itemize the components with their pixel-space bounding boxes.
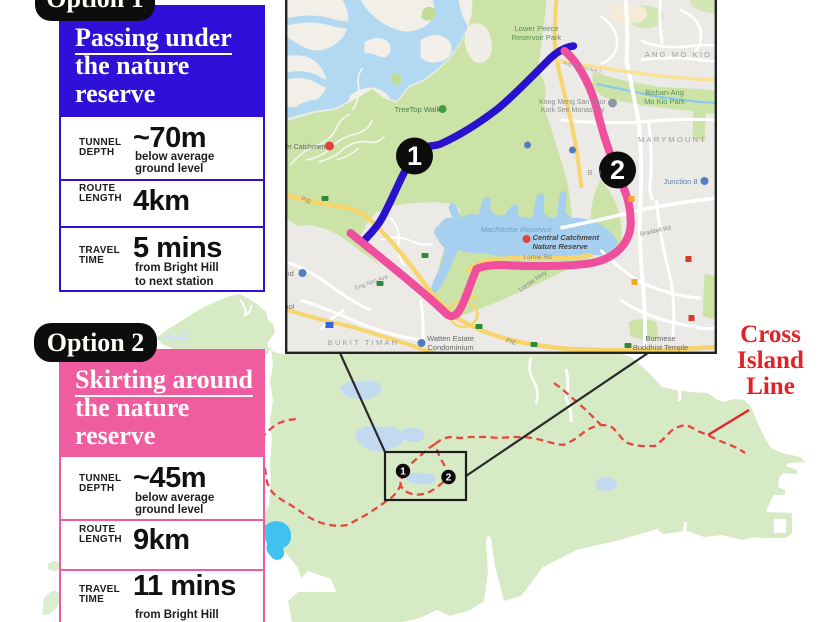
svg-text:Condominium: Condominium <box>427 343 473 352</box>
svg-text:Central Catchment: Central Catchment <box>532 233 599 242</box>
svg-text:Watten Estate: Watten Estate <box>427 334 474 343</box>
svg-text:MARYMOUNT: MARYMOUNT <box>638 135 707 144</box>
svg-text:Burmese: Burmese <box>645 334 675 343</box>
svg-text:2: 2 <box>609 155 624 185</box>
svg-text:BUKIT TIMAH: BUKIT TIMAH <box>327 338 398 347</box>
svg-text:1: 1 <box>400 467 406 478</box>
svg-text:TreeTop Walk: TreeTop Walk <box>394 105 440 114</box>
svg-text:Lornie Rd: Lornie Rd <box>523 254 552 261</box>
svg-text:Lower Peirce: Lower Peirce <box>514 24 558 33</box>
svg-text:Kork See Monastery: Kork See Monastery <box>540 107 604 114</box>
svg-text:Junction 8: Junction 8 <box>663 177 697 186</box>
svg-text:Reservoir Park: Reservoir Park <box>511 33 561 42</box>
svg-text:er Catchment: er Catchment <box>285 144 327 151</box>
svg-text:2: 2 <box>446 473 452 484</box>
svg-text:1: 1 <box>406 141 421 171</box>
svg-text:Kong Meng San Phor: Kong Meng San Phor <box>539 99 607 106</box>
svg-text:Bishan-Ang: Bishan-Ang <box>645 88 684 97</box>
svg-text:Nature Reserve: Nature Reserve <box>532 242 587 251</box>
svg-text:Buddhist Temple: Buddhist Temple <box>632 343 687 352</box>
svg-text:Mo Kio Park: Mo Kio Park <box>644 97 685 106</box>
svg-text:ANG MO KIO: ANG MO KIO <box>644 50 711 59</box>
svg-text:B I: B I <box>587 168 603 177</box>
